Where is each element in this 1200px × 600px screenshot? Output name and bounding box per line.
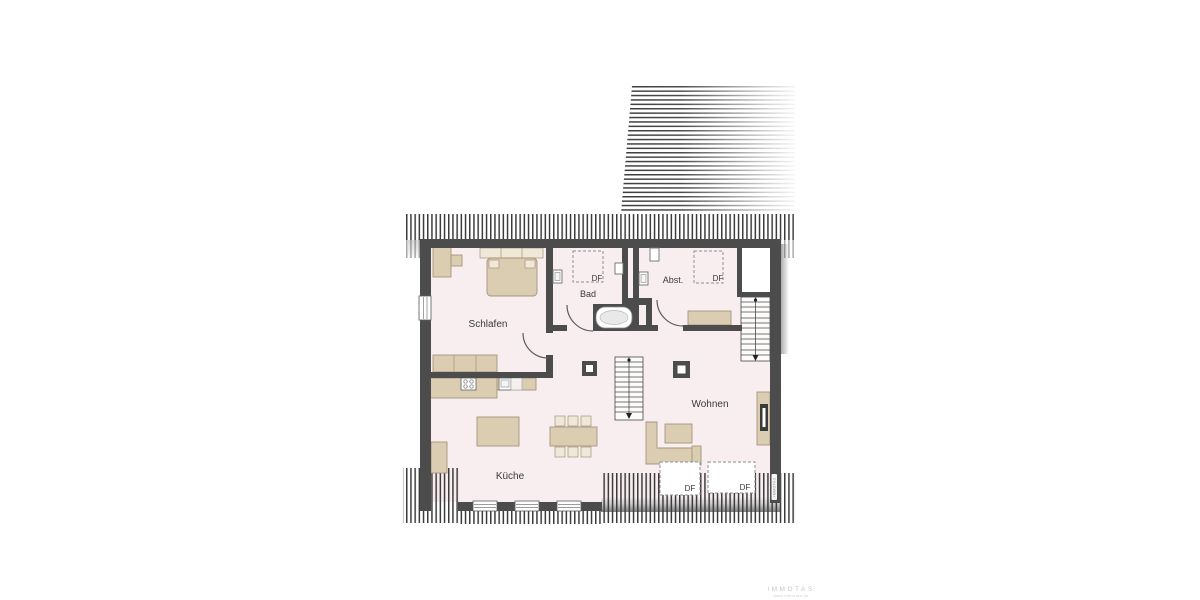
window-bottom-1 [473, 501, 497, 511]
pillar-1 [582, 361, 597, 376]
chair [581, 447, 591, 457]
wall-storage-bottom-left [639, 325, 658, 331]
wall-outer-right [770, 239, 781, 503]
storage-vent [650, 248, 659, 261]
right-eave-shadow [781, 244, 789, 354]
coffee-table [665, 424, 692, 443]
staircase-right [741, 297, 770, 361]
wall-watermark-text: IMMOTAS [773, 477, 777, 497]
window-bottom-2 [515, 501, 539, 511]
brand-watermark-name: IMMOTAS [767, 586, 814, 593]
room-label-bathroom: Bad [580, 289, 596, 299]
pillow-left [489, 260, 499, 268]
chair [568, 447, 578, 457]
room-label-storage: Abst. [663, 275, 684, 285]
bathtub [593, 304, 635, 331]
skylight-label-bath: DF [592, 274, 603, 283]
window-left [419, 296, 431, 320]
brand-watermark: IMMOTAS www.immotas.de [767, 586, 814, 598]
room-label-bedroom: Schlafen [469, 319, 508, 330]
storage-shelf [688, 311, 731, 325]
wall-bedroom-bath [546, 248, 553, 333]
left-eave-shadow [408, 240, 420, 260]
kitchen-worktop-end [511, 378, 522, 390]
skylight-label-living-2: DF [740, 483, 751, 492]
wall-storage-bottom-right [683, 325, 742, 331]
room-label-kitchen: Küche [496, 471, 525, 482]
wall-watermark: IMMOTAS [772, 474, 778, 500]
chair [568, 416, 578, 426]
dining-table [550, 427, 597, 446]
bath-sink [615, 263, 623, 274]
storage-sink [639, 272, 648, 285]
kitchen-island [477, 417, 519, 446]
wardrobe [433, 247, 451, 277]
skylight-label-living-1: DF [685, 484, 696, 493]
wall-stairvoid-left [737, 248, 742, 297]
wall-bedroom-kitchen [430, 372, 550, 378]
chair [581, 416, 591, 426]
staircase-central [615, 357, 643, 420]
wall-stairvoid-bottom [737, 292, 770, 297]
skylight-label-storage: DF [713, 274, 724, 283]
stair-void [742, 248, 770, 292]
roof-wing-hatch [621, 86, 795, 213]
tall-cabinet [431, 442, 447, 473]
pillow-right [525, 260, 535, 268]
floorplan-page: Schlafen Bad Abst. Wohnen Küche DF DF DF… [0, 0, 1200, 600]
wall-outer-top [420, 239, 781, 248]
tv-screen-inner [763, 408, 766, 427]
roof-hatch-top [406, 214, 794, 240]
nightstand [451, 255, 462, 266]
floorplan-drawing: Schlafen Bad Abst. Wohnen Küche DF DF DF… [0, 0, 1200, 600]
window-bottom-3 [557, 501, 581, 511]
roof-hatch-bottom-middle [459, 511, 601, 524]
wall-outer-left [420, 239, 431, 511]
headboard-shelf [480, 248, 543, 258]
chair [555, 447, 565, 457]
room-label-living: Wohnen [691, 399, 728, 410]
kitchen-sink [499, 378, 511, 390]
brand-watermark-site: www.immotas.de [773, 593, 809, 598]
toilet [553, 270, 562, 283]
stove [461, 378, 476, 390]
dining-set [550, 416, 597, 457]
chair [555, 416, 565, 426]
wall-bath-bottom [546, 325, 567, 331]
wall-bath-right [622, 248, 628, 305]
pillar-2 [673, 361, 690, 378]
bedroom-closet-row [433, 355, 497, 372]
